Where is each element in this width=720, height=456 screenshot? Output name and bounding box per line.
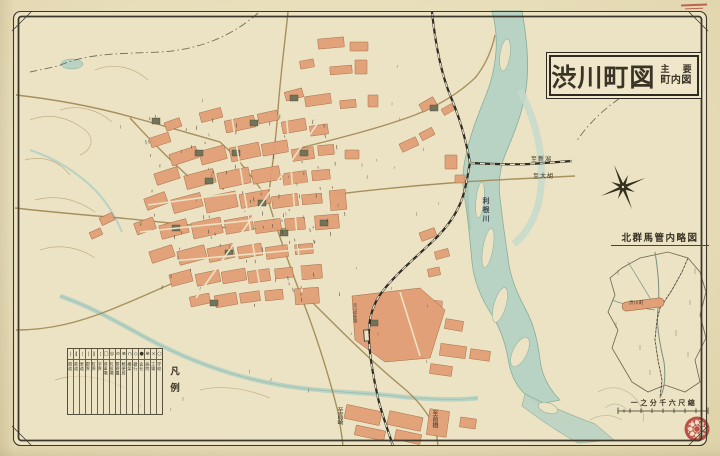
legend-symbol-icon: ‖ [92, 349, 97, 360]
legend-item-label: 郡界 [86, 362, 91, 414]
map-sheet: 渋川町図 主 要 町内図 北群馬管内略図 渋川町 一之分千六尺縮 |国道‖県道¦… [0, 0, 720, 456]
legend-item: ○学校 [157, 349, 162, 414]
legend-item-label: 県道 [74, 362, 79, 414]
to-ogo-label: 至大胡 [533, 171, 554, 180]
legend-item-label: 停車場 [104, 362, 109, 414]
legend-item-label: 警察署 [116, 362, 121, 414]
legend-symbol-icon: ● [139, 349, 144, 360]
legend-symbol-icon: □ [104, 349, 109, 360]
map-subtitle-line2: 町内図 [660, 75, 696, 87]
inset-shibukawa-label: 渋川町 [629, 300, 644, 306]
legend-symbol-icon: ⊗ [121, 349, 126, 360]
legend-item-label: 町役場 [110, 362, 115, 414]
legend-symbol-icon: ○ [157, 349, 162, 360]
legend-item-label: 学校 [157, 362, 162, 414]
legend-item-label: 橋梁 [127, 362, 132, 414]
legend-table: |国道‖県道¦里道|郡界‖町界¦字界□停車場◎町役場⊙警察署⊗郵便局∩橋梁◇銀行… [67, 348, 163, 415]
legend-symbol-icon: ⊙ [116, 349, 121, 360]
legend-title: 凡例 [166, 366, 180, 412]
legend-symbol-icon: × [151, 349, 156, 360]
legend-item-label: 字界 [98, 362, 103, 414]
legend-symbol-icon: ‖ [74, 349, 79, 360]
to-maebashi-label: 至前橋 [430, 410, 439, 428]
map-title-box: 渋川町図 主 要 町内図 [546, 52, 702, 99]
legend-item-label: 病院 [145, 362, 150, 414]
legend-item-label: 町界 [92, 362, 97, 414]
inset-map-title: 北群馬管内略図 [611, 230, 709, 246]
red-catalog-mark [681, 2, 707, 13]
station-label: 渋川停車場 [352, 303, 358, 323]
red-seal-stamp [685, 417, 710, 442]
legend-symbol-icon: ◎ [110, 349, 115, 360]
legend-item-label: 里道 [80, 362, 85, 414]
legend-item-label: 工場 [151, 362, 156, 414]
map-title-inner-frame: 渋川町図 主 要 町内図 [549, 55, 699, 96]
legend-symbol-icon: ¦ [80, 349, 85, 360]
map-title: 渋川町図 [551, 58, 655, 94]
legend-symbol-icon: ¦ [98, 349, 103, 360]
legend-symbol-icon: ∩ [127, 349, 132, 360]
legend-symbol-icon: | [68, 349, 73, 360]
map-subtitle: 主 要 町内図 [660, 65, 696, 87]
legend-symbol-icon: ⊕ [145, 349, 150, 360]
legend-item-label: 会社 [139, 362, 144, 414]
scale-text: 一之分千六尺縮 [618, 398, 710, 408]
to-niigata-label: 至新潟 [531, 154, 552, 163]
to-takasaki-label: 至高崎 [335, 407, 344, 425]
legend-item-label: 郵便局 [121, 362, 126, 414]
legend-item-label: 銀行 [133, 362, 138, 414]
map-subtitle-line1: 主 要 [660, 65, 696, 75]
tone-river-label: 利根川 [481, 197, 491, 224]
legend-symbol-icon: ◇ [133, 349, 138, 360]
legend-symbol-icon: | [86, 349, 91, 360]
legend-item-label: 国道 [68, 362, 73, 414]
station-symbol [364, 330, 370, 341]
